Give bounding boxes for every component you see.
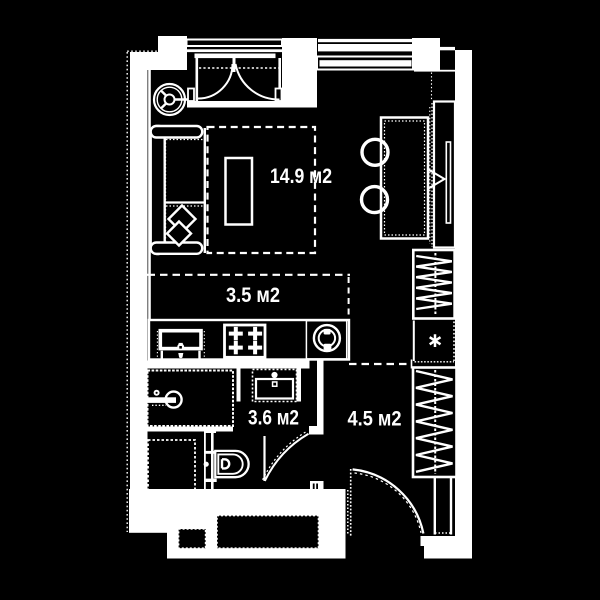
svg-text:3.5 м2: 3.5 м2: [226, 283, 280, 307]
svg-text:3.6 м2: 3.6 м2: [248, 406, 299, 430]
svg-text:14.9 м2: 14.9 м2: [270, 164, 332, 188]
svg-text:4.5 м2: 4.5 м2: [348, 407, 402, 431]
